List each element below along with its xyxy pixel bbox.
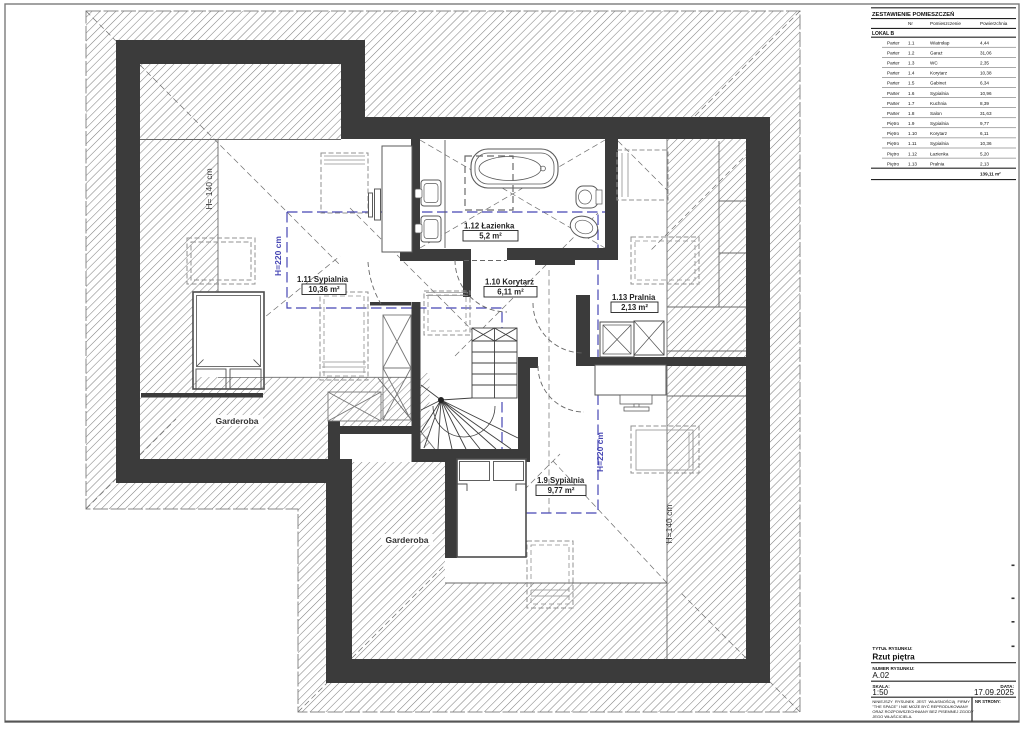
svg-text:H=220 cm: H=220 cm <box>273 236 283 276</box>
svg-text:1.12 Łazienka: 1.12 Łazienka <box>464 222 515 231</box>
svg-text:H=220 cm: H=220 cm <box>595 432 605 472</box>
svg-text:Parter: Parter <box>887 61 900 66</box>
svg-text:Pralnia: Pralnia <box>930 161 945 166</box>
svg-text:Garaż: Garaż <box>930 51 943 56</box>
svg-text:Łazienka: Łazienka <box>930 151 949 156</box>
svg-text:Pomieszczenie: Pomieszczenie <box>930 21 961 26</box>
svg-text:Gabinet: Gabinet <box>930 81 947 86</box>
svg-text:31,63: 31,63 <box>980 111 992 116</box>
svg-text:WC: WC <box>930 61 938 66</box>
svg-text:10,38: 10,38 <box>980 71 992 76</box>
svg-text:1.12: 1.12 <box>908 151 917 156</box>
svg-text:9,77: 9,77 <box>980 121 989 126</box>
svg-text:LOKAL B: LOKAL B <box>872 31 895 37</box>
svg-text:9,77 m²: 9,77 m² <box>548 486 575 495</box>
svg-text:H= 140 cm: H= 140 cm <box>204 168 214 209</box>
svg-text:1.9 Sypialnia: 1.9 Sypialnia <box>537 476 585 485</box>
svg-text:1.11 Sypialnia: 1.11 Sypialnia <box>297 275 349 284</box>
svg-text:10,96: 10,96 <box>980 91 992 96</box>
svg-text:2,35: 2,35 <box>980 61 989 66</box>
svg-text:1.10 Korytarz: 1.10 Korytarz <box>485 278 534 287</box>
svg-text:JEGO WŁAŚCICIELA.: JEGO WŁAŚCICIELA. <box>872 714 912 719</box>
svg-text:1.4: 1.4 <box>908 71 915 76</box>
svg-text:Parter: Parter <box>887 40 900 45</box>
svg-text:1.11: 1.11 <box>908 141 917 146</box>
svg-text:1.13 Pralnia: 1.13 Pralnia <box>612 293 656 302</box>
svg-text:Wiatrołap: Wiatrołap <box>930 40 950 45</box>
svg-text:Parter: Parter <box>887 101 900 106</box>
svg-text:Sypialnia: Sypialnia <box>930 91 949 96</box>
svg-text:1.13: 1.13 <box>908 161 917 166</box>
svg-text:Piętro: Piętro <box>887 151 899 156</box>
svg-text:Parter: Parter <box>887 91 900 96</box>
svg-text:H=140 cm: H=140 cm <box>664 505 674 544</box>
svg-text:2,13 m²: 2,13 m² <box>621 303 648 312</box>
svg-text:1.3: 1.3 <box>908 61 915 66</box>
svg-text:8,39: 8,39 <box>980 101 989 106</box>
svg-text:Parter: Parter <box>887 111 900 116</box>
svg-text:1.10: 1.10 <box>908 131 917 136</box>
svg-text:NR STRONY:: NR STRONY: <box>975 699 1001 704</box>
svg-text:4,44: 4,44 <box>980 40 989 45</box>
svg-text:Salon: Salon <box>930 111 942 116</box>
svg-text:1.1: 1.1 <box>908 40 915 45</box>
svg-text:139,11 m²: 139,11 m² <box>980 171 1001 176</box>
svg-text:Garderoba: Garderoba <box>386 535 429 545</box>
svg-text:Powierzchnia: Powierzchnia <box>980 21 1008 26</box>
svg-text:6,11: 6,11 <box>980 131 989 136</box>
svg-text:31,06: 31,06 <box>980 51 992 56</box>
svg-text:Sypialnia: Sypialnia <box>930 141 949 146</box>
svg-text:Korytarz: Korytarz <box>930 131 948 136</box>
svg-text:1.8: 1.8 <box>908 111 915 116</box>
svg-text:Piętro: Piętro <box>887 121 899 126</box>
svg-text:Rzut piętra: Rzut piętra <box>872 653 915 662</box>
svg-text:Sypialnia: Sypialnia <box>930 121 949 126</box>
svg-text:Parter: Parter <box>887 51 900 56</box>
svg-text:1.7: 1.7 <box>908 101 915 106</box>
svg-text:1.5: 1.5 <box>908 81 915 86</box>
svg-text:6,11 m²: 6,11 m² <box>497 288 524 297</box>
svg-text:ZESTAWIENIE POMIESZCZEŃ: ZESTAWIENIE POMIESZCZEŃ <box>872 10 954 18</box>
svg-text:2,13: 2,13 <box>980 161 989 166</box>
svg-text:Korytarz: Korytarz <box>930 71 948 76</box>
svg-text:Piętro: Piętro <box>887 161 899 166</box>
svg-text:Piętro: Piętro <box>887 141 899 146</box>
svg-text:6,34: 6,34 <box>980 81 989 86</box>
svg-text:Parter: Parter <box>887 71 900 76</box>
svg-text:17.09.2025: 17.09.2025 <box>974 688 1015 697</box>
svg-text:10,36: 10,36 <box>980 141 992 146</box>
svg-text:10,36 m²: 10,36 m² <box>308 285 340 294</box>
svg-text:1.2: 1.2 <box>908 51 915 56</box>
svg-text:1.9: 1.9 <box>908 121 915 126</box>
svg-text:Parter: Parter <box>887 81 900 86</box>
svg-text:Kuchnia: Kuchnia <box>930 101 947 106</box>
svg-text:Garderoba: Garderoba <box>216 416 259 426</box>
svg-text:TYTUŁ RYSUNKU:: TYTUŁ RYSUNKU: <box>872 646 913 651</box>
svg-text:A.02: A.02 <box>872 671 889 680</box>
svg-text:1.6: 1.6 <box>908 91 915 96</box>
svg-text:Piętro: Piętro <box>887 131 899 136</box>
svg-text:Nr: Nr <box>908 21 913 26</box>
svg-text:5,2 m²: 5,2 m² <box>479 232 502 241</box>
svg-text:5,20: 5,20 <box>980 151 989 156</box>
svg-text:1:50: 1:50 <box>872 688 888 697</box>
